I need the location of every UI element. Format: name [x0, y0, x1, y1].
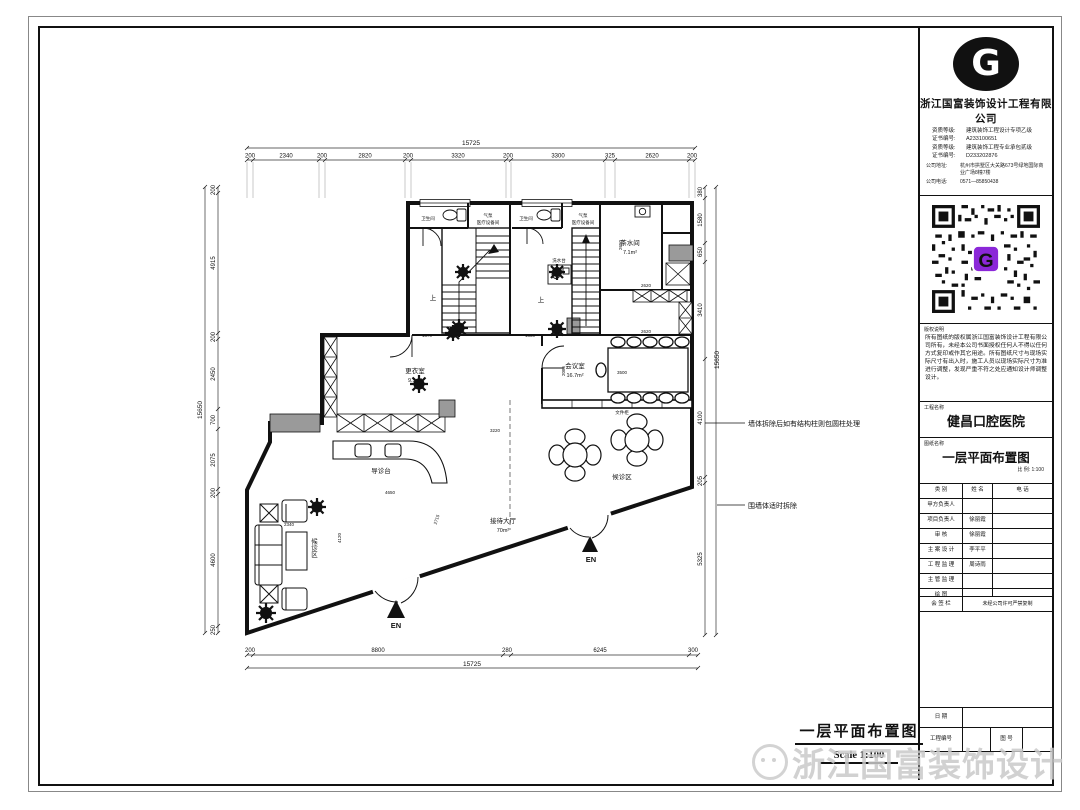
dim: 4915 — [211, 256, 217, 270]
dim: 2075 — [211, 453, 217, 467]
dim: 2340 — [279, 154, 293, 160]
cred-value: 建筑装饰工程专业承包贰级 — [966, 145, 1044, 152]
dim: 200 — [245, 648, 256, 654]
role-cell: 项目负责人 — [920, 514, 962, 528]
cred-value: 建筑装饰工程设计专项乙级 — [966, 128, 1044, 135]
dim-inner: 3500 — [617, 370, 628, 375]
dim: 250 — [211, 624, 217, 635]
role-cell: 工 程 监 理 — [920, 559, 962, 573]
waiting-area-label: 候诊区 — [612, 472, 632, 481]
table-row: 甲方负责人 — [920, 498, 1052, 513]
phone-label: 公司电话: — [926, 179, 960, 186]
phone-cell — [992, 514, 1052, 528]
project-name-section: 工程名称 健昌口腔医院 — [920, 402, 1052, 438]
dim: 650 — [698, 246, 704, 257]
copyright-section: 版权说明 所有图纸的版权属浙江国富装饰设计工程有限公司所有，未经本公司书面授权任… — [920, 324, 1052, 402]
role-cell: 甲方负责人 — [920, 499, 962, 513]
sign-label: 会 签 栏 — [920, 597, 962, 611]
role-cell: 主 管 监 理 — [920, 574, 962, 588]
address-value: 杭州市拱墅区大关路673号绿地国际商业广场8幢7楼 — [960, 163, 1048, 176]
room-area-tea: 7.1m² — [623, 250, 637, 256]
drawing-name: 一层平面布置图 — [920, 447, 1052, 466]
dim: 8800 — [371, 648, 385, 654]
dimension-chain-right — [703, 185, 718, 637]
stair-up-label: 上 — [430, 293, 437, 302]
room-area-meeting: 16.7m² — [566, 373, 583, 379]
col-header: 类 别 — [920, 484, 962, 498]
dim: 300 — [688, 648, 699, 654]
dim: 380 — [698, 186, 704, 197]
cred-value: D233202876 — [966, 153, 1044, 160]
sign-empty-box — [920, 612, 1052, 708]
dim: 200 — [211, 331, 217, 342]
annotation-demolish: 围墙体适时拆除 — [748, 501, 797, 510]
qr-section: G — [920, 196, 1052, 324]
title-block: G 浙江国富装饰设计工程有限公司 资质等级:建筑装饰工程设计专项乙级 证书编号:… — [918, 28, 1052, 780]
dim-inner: 1370 — [422, 333, 433, 338]
phone-cell — [992, 499, 1052, 513]
scale-note: 比 例: 1:100 — [920, 466, 1044, 473]
table-row: 主 案 设 计 李平平 — [920, 543, 1052, 558]
dim-left-total: 15650 — [197, 401, 204, 419]
dim-inner: 2340 — [284, 522, 295, 527]
dim: 2450 — [211, 367, 217, 381]
dim: 5325 — [698, 552, 704, 566]
phone-cell — [992, 574, 1052, 588]
dim: 200 — [211, 487, 217, 498]
phone-value: 0571—85850438 — [960, 179, 1048, 186]
hall-area-label: 70m² — [497, 528, 510, 534]
stair-up-label: 上 — [538, 295, 545, 304]
dim-inner: 4650 — [385, 490, 396, 495]
dim-inner: 3220 — [490, 428, 501, 433]
table-header-row: 类 别 姓 名 电 话 — [920, 484, 1052, 498]
dim-right-total: 15650 — [714, 351, 721, 369]
copyright-text: 所有图纸的版权属浙江国富装饰设计工程有限公司所有，未经本公司书面授权任何人不得以… — [925, 334, 1047, 383]
company-name: 浙江国富装饰设计工程有限公司 — [920, 96, 1052, 126]
copyright-label: 版权说明 — [924, 326, 1052, 333]
sign-row: 会 签 栏 未经公司许可严禁复制 — [920, 597, 1052, 612]
annotation-wall: 墙体拆除后如有结构柱则包圆柱处理 — [748, 419, 860, 428]
dim: 1580 — [698, 213, 704, 227]
room-label-toilet: 卫生间 — [519, 215, 533, 222]
dim-bottom-total: 15725 — [463, 661, 481, 668]
name-cell — [962, 589, 992, 597]
cred-label: 证书编号: — [932, 136, 966, 143]
room-label-equip: 医疗设备间 — [477, 219, 500, 226]
dim: 3410 — [698, 303, 704, 317]
room-label-equip: 医疗设备间 — [572, 219, 595, 226]
room-label-meeting: 会议室 — [565, 361, 585, 370]
entrance-label: EN — [586, 555, 596, 564]
role-cell: 主 案 设 计 — [920, 544, 962, 558]
dim: 2820 — [358, 154, 372, 160]
room-label-changing: 更衣室 — [405, 366, 425, 375]
dim: 200 — [211, 184, 217, 195]
room-label-pump: 气泵 — [484, 212, 493, 218]
name-cell: 李平平 — [962, 544, 992, 558]
logo-letter: G — [971, 46, 1001, 82]
name-cell: 徐丽霞 — [962, 514, 992, 528]
sink-label: 洗水台 — [552, 257, 566, 264]
dim-inner: 2650 — [618, 239, 623, 250]
hall-label: 接待大厅 — [490, 516, 517, 525]
watermark-face-icon — [752, 744, 788, 780]
floor-plan: 15725 200 2340 200 2820 200 3320 200 330… — [185, 130, 895, 710]
dim: 4600 — [211, 553, 217, 567]
phone-cell — [992, 589, 1052, 597]
watermark: 浙江国富装饰设计 — [752, 738, 1080, 786]
dim: 325 — [605, 154, 616, 160]
phone-cell — [992, 529, 1052, 543]
company-section: G 浙江国富装饰设计工程有限公司 资质等级:建筑装饰工程设计专项乙级 证书编号:… — [920, 28, 1052, 196]
dim: 3320 — [451, 154, 465, 160]
dimension-chain-top — [245, 146, 697, 198]
dim: 700 — [211, 414, 217, 425]
sign-note: 未经公司许可严禁复制 — [962, 597, 1052, 611]
room-label-toilet: 卫生间 — [421, 215, 435, 222]
cred-label: 资质等级: — [932, 145, 966, 152]
dim-inner: 2620 — [641, 329, 652, 334]
reception-desk-label: 导诊台 — [371, 466, 391, 475]
dim: 200 — [687, 154, 698, 160]
phone-cell — [992, 544, 1052, 558]
table-row: 审 核 徐丽霞 — [920, 528, 1052, 543]
company-logo: G — [953, 37, 1019, 91]
room-label-tea: 茶水间 — [620, 238, 640, 247]
dim: 4100 — [698, 411, 704, 425]
cred-label: 资质等级: — [932, 128, 966, 135]
date-value — [962, 708, 1052, 727]
dim: 3300 — [551, 154, 565, 160]
col-header: 姓 名 — [962, 484, 992, 498]
role-cell: 绘 图 — [920, 589, 962, 597]
room-area-changing: 9.3m² — [408, 378, 422, 384]
table-row: 项目负责人 徐丽霞 — [920, 513, 1052, 528]
dim-inner: 4120 — [337, 532, 342, 543]
cred-label: 证书编号: — [932, 153, 966, 160]
dim: 200 — [245, 154, 256, 160]
dim-inner: 1330 — [525, 333, 536, 338]
drawing-label: 图纸名称 — [924, 440, 1052, 447]
dim: 280 — [502, 648, 513, 654]
dim-top-total: 15725 — [462, 140, 480, 147]
room-label-pump: 气泵 — [579, 212, 588, 218]
drawing-name-section: 图纸名称 一层平面布置图 比 例: 1:100 — [920, 438, 1052, 484]
dim: 6245 — [593, 648, 607, 654]
table-row: 主 管 监 理 — [920, 573, 1052, 588]
name-cell: 徐丽霞 — [962, 529, 992, 543]
annotation-leader — [705, 423, 745, 505]
dim: 200 — [403, 154, 414, 160]
project-name: 健昌口腔医院 — [920, 411, 1052, 430]
dim-inner: 2620 — [641, 283, 652, 288]
dim: 2620 — [645, 154, 659, 160]
date-label: 日 期 — [920, 708, 962, 727]
address-label: 公司地址: — [926, 163, 960, 176]
entrance-label: EN — [391, 621, 401, 630]
cabinet-label: 文件柜 — [615, 409, 629, 416]
name-cell — [962, 574, 992, 588]
table-row: 工 程 监 理 周诗雨 — [920, 558, 1052, 573]
col-header: 电 话 — [992, 484, 1052, 498]
phone-cell — [992, 559, 1052, 573]
dim-inner: 2085 — [561, 365, 566, 376]
svg-text:G: G — [978, 250, 993, 272]
qr-code: G — [932, 205, 1040, 313]
dim: 200 — [317, 154, 328, 160]
name-cell: 周诗雨 — [962, 559, 992, 573]
watermark-text: 浙江国富装饰设计 — [792, 738, 1064, 786]
name-cell — [962, 499, 992, 513]
date-row: 日 期 — [920, 708, 1052, 728]
project-label: 工程名称 — [924, 404, 1052, 411]
role-cell: 审 核 — [920, 529, 962, 543]
cred-value: A233100651 — [966, 136, 1044, 143]
dim: 200 — [503, 154, 514, 160]
personnel-table: 类 别 姓 名 电 话 甲方负责人 项目负责人 徐丽霞 审 核 徐丽霞 主 案 … — [920, 484, 1052, 597]
dim: 205 — [698, 475, 704, 486]
table-row: 绘 图 — [920, 588, 1052, 597]
